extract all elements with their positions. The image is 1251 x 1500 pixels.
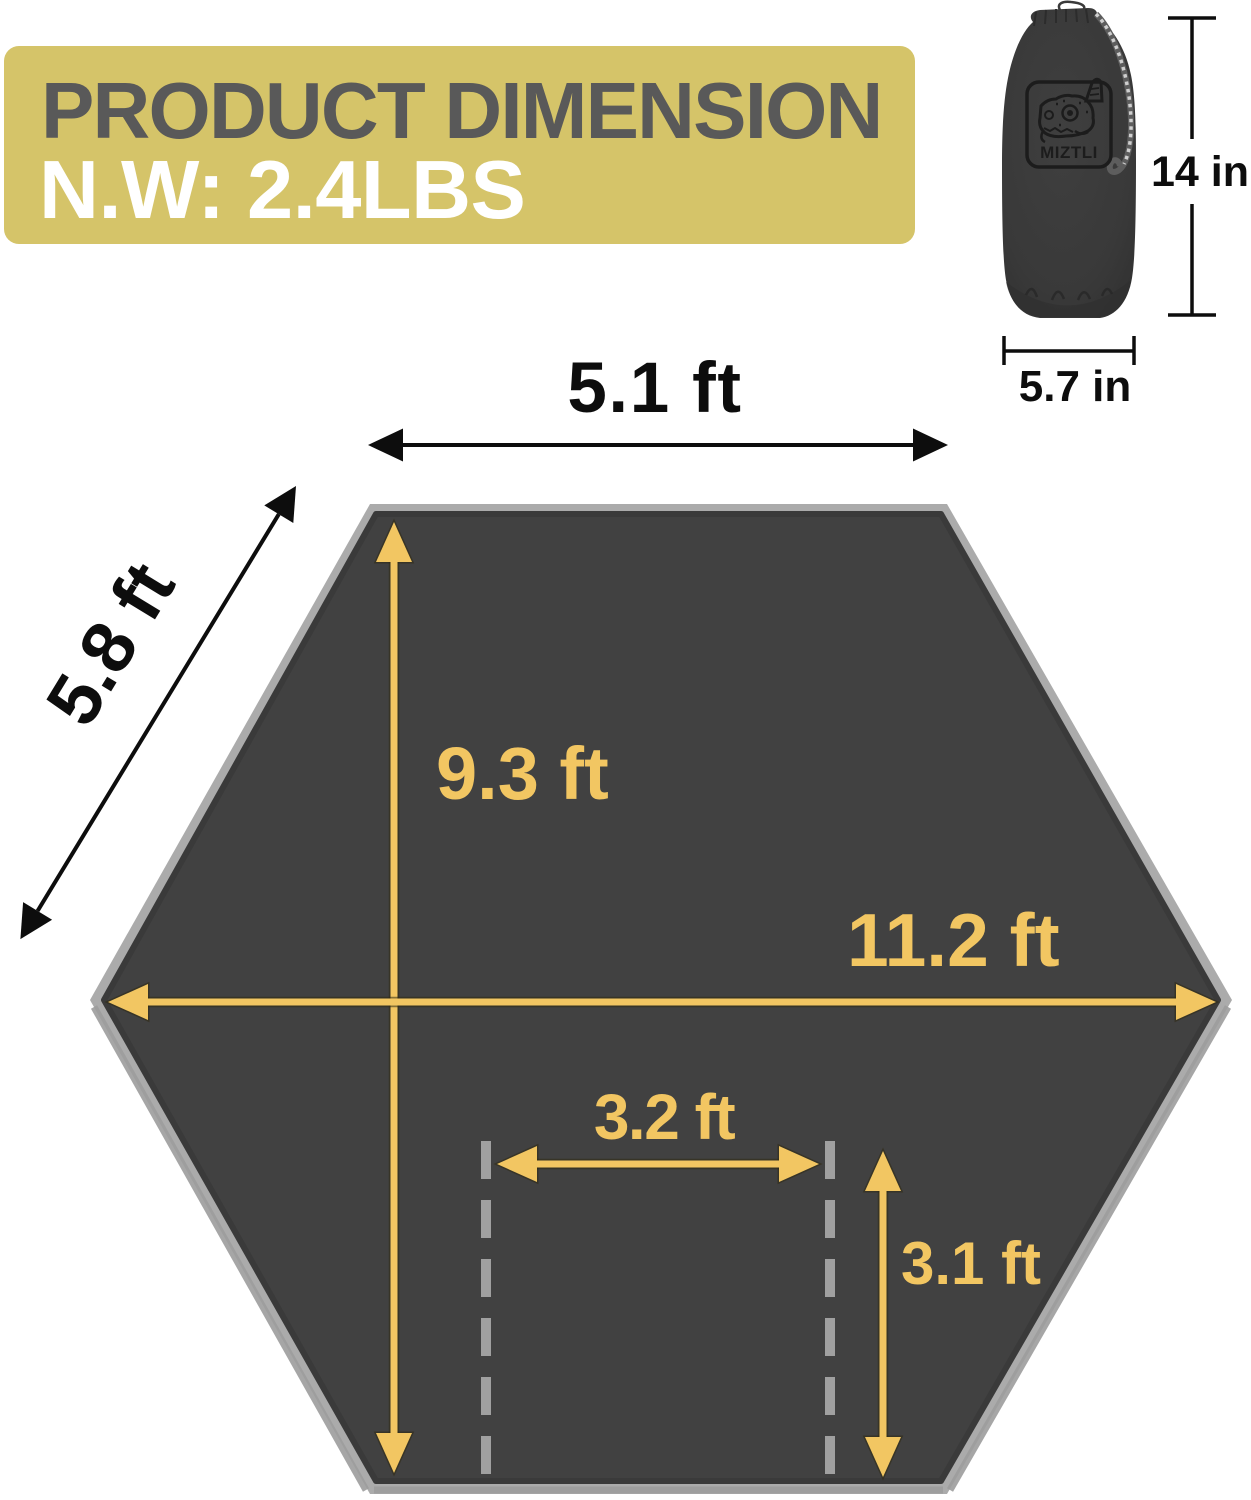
svg-text:5.1 ft: 5.1 ft: [567, 349, 742, 428]
svg-text:14 in: 14 in: [1151, 148, 1249, 196]
svg-text:9.3 ft: 9.3 ft: [436, 732, 609, 815]
svg-text:11.2 ft: 11.2 ft: [847, 898, 1060, 982]
svg-text:MIZTLI: MIZTLI: [1040, 143, 1098, 162]
svg-text:3.2 ft: 3.2 ft: [594, 1081, 736, 1153]
svg-text:3.1 ft: 3.1 ft: [901, 1230, 1041, 1297]
svg-text:5.7 in: 5.7 in: [1019, 362, 1132, 411]
svg-text:PRODUCT DIMENSION: PRODUCT DIMENSION: [41, 66, 882, 155]
svg-text:5.8 ft: 5.8 ft: [30, 548, 191, 739]
svg-text:N.W: 2.4LBS: N.W: 2.4LBS: [39, 143, 525, 236]
